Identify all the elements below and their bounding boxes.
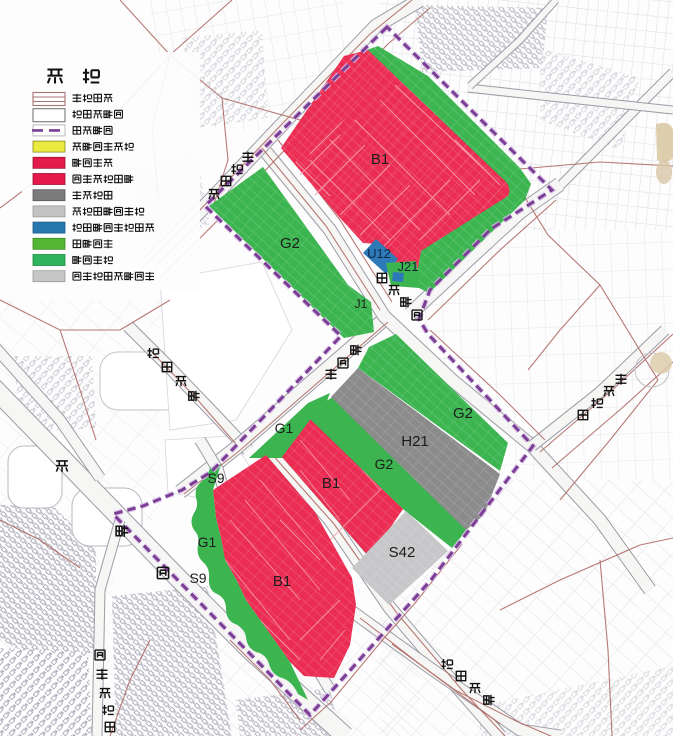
svg-text:G1: G1 [275, 420, 294, 436]
svg-text:U12: U12 [367, 246, 391, 261]
svg-text:B1: B1 [322, 475, 340, 492]
svg-text:S9: S9 [189, 570, 206, 586]
svg-text:G2: G2 [375, 456, 394, 472]
svg-text:B1: B1 [371, 151, 389, 168]
svg-text:G2: G2 [280, 235, 300, 252]
svg-text:J21: J21 [398, 259, 419, 274]
svg-text:G1: G1 [198, 534, 217, 550]
svg-text:B1: B1 [273, 573, 291, 590]
svg-text:G2: G2 [453, 405, 473, 422]
svg-text:S42: S42 [389, 544, 416, 561]
svg-text:H21: H21 [401, 433, 429, 450]
svg-text:S9: S9 [207, 470, 224, 486]
svg-text:J1: J1 [355, 297, 368, 311]
